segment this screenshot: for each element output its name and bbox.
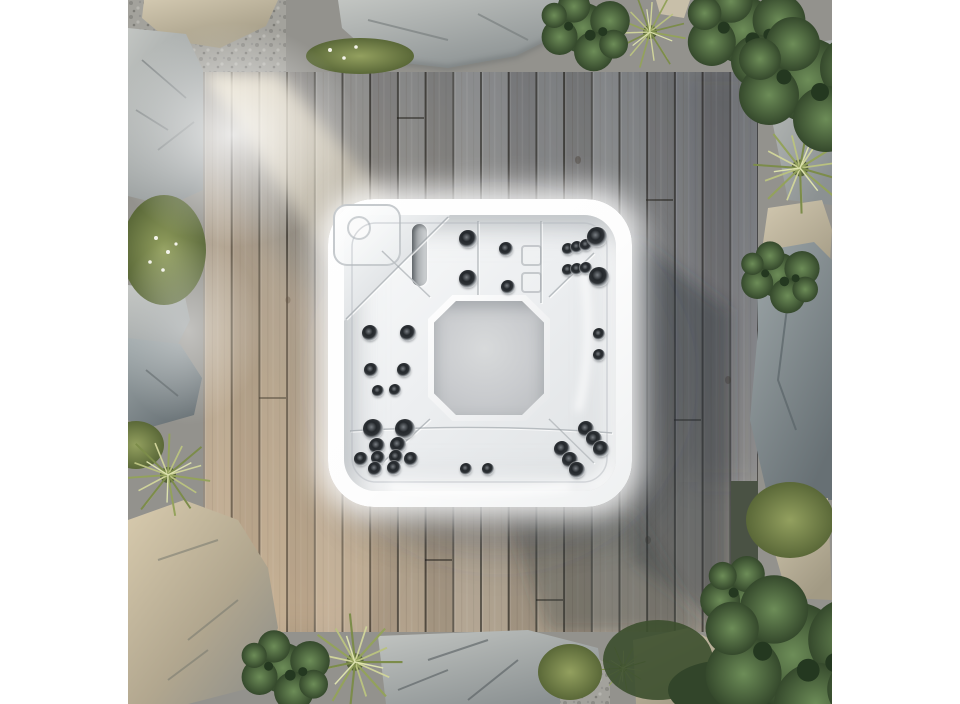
jet [459, 270, 477, 288]
jet [389, 384, 401, 396]
jet [459, 230, 477, 248]
jet [387, 461, 401, 475]
jet [587, 227, 607, 247]
jets-layer [328, 199, 632, 507]
moss-right [746, 482, 832, 558]
moss-bottom [538, 644, 602, 700]
jet [397, 363, 411, 377]
hot-tub [328, 199, 632, 507]
jet [362, 325, 378, 341]
jet [404, 452, 418, 466]
jet [569, 462, 585, 478]
jet [589, 267, 609, 287]
jet [400, 325, 416, 341]
jet [368, 462, 382, 476]
jet [482, 463, 494, 475]
aerial-photo [128, 0, 832, 704]
jet [593, 441, 609, 457]
jet [501, 280, 515, 294]
product-image-canvas [0, 0, 960, 704]
jet [593, 328, 605, 340]
jet [372, 385, 384, 397]
jet [593, 349, 605, 361]
jet [363, 419, 383, 439]
jet [354, 452, 368, 466]
jet [364, 363, 378, 377]
jet [395, 419, 415, 439]
jet [499, 242, 513, 256]
jet [460, 463, 472, 475]
